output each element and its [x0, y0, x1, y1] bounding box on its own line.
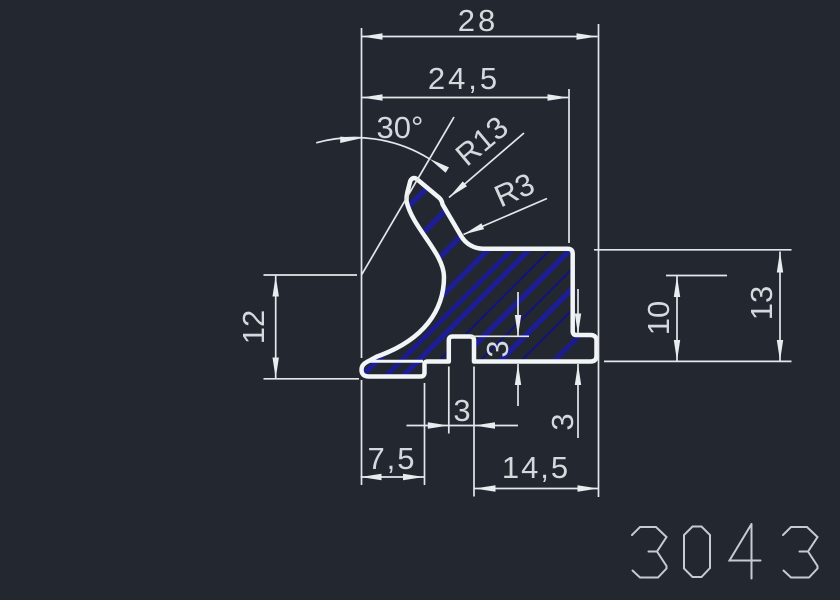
svg-text:30°: 30° — [377, 110, 424, 145]
svg-text:12: 12 — [236, 310, 271, 344]
svg-text:14,5: 14,5 — [502, 450, 570, 485]
svg-text:24,5: 24,5 — [428, 61, 500, 96]
svg-text:10: 10 — [641, 301, 676, 335]
svg-text:3: 3 — [480, 340, 515, 357]
svg-text:7,5: 7,5 — [367, 441, 416, 476]
svg-text:28: 28 — [458, 3, 498, 38]
svg-text:3: 3 — [545, 413, 580, 430]
svg-text:13: 13 — [744, 286, 779, 320]
svg-text:3: 3 — [453, 393, 470, 428]
